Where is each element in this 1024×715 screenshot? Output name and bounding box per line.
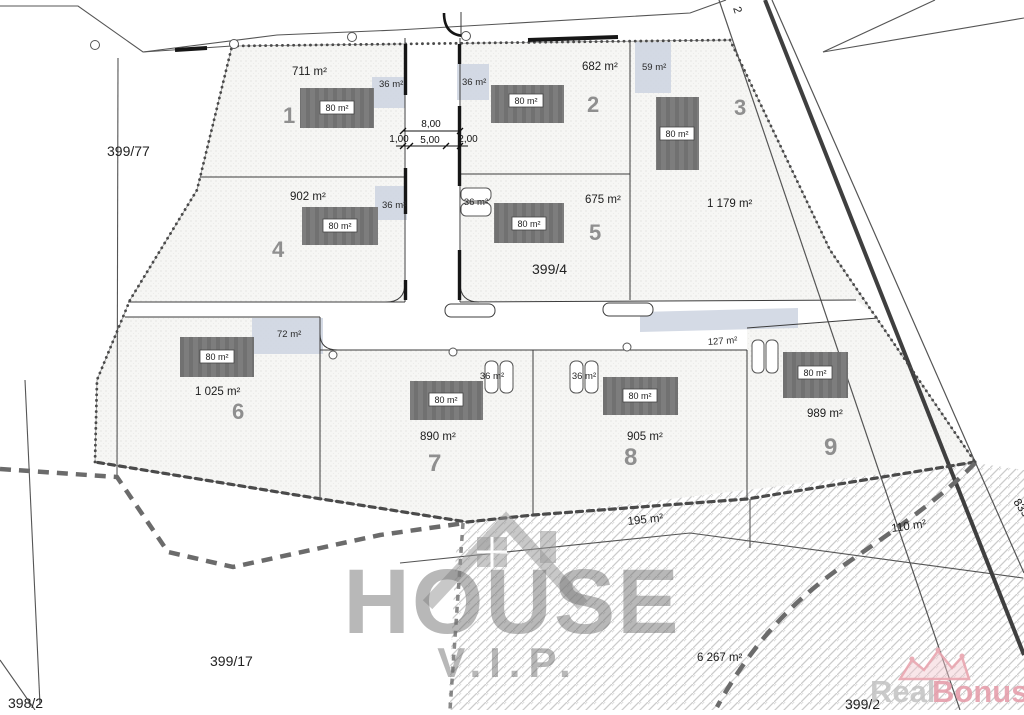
- plot-1-area: 711 m²: [292, 66, 327, 78]
- plot-6-number: 6: [232, 399, 244, 424]
- dim-right-label: 2,00: [458, 134, 478, 145]
- logo-word1: Real: [870, 674, 935, 709]
- plot-8-garage-label: 36 m²: [572, 371, 596, 382]
- parcel-398-2-label: 398/2: [8, 695, 43, 710]
- plot-3-number: 3: [734, 95, 746, 120]
- plot-5-house-label: 80 m²: [517, 219, 540, 229]
- parcel-399-17-label: 399/17: [210, 653, 253, 669]
- plot-4-garage-label: 36 m²: [382, 200, 406, 211]
- plot-9-number: 9: [824, 434, 837, 461]
- plot-8-number: 8: [624, 444, 637, 471]
- plot-4-number: 4: [272, 237, 285, 262]
- plot-1-garage-label: 36 m²: [379, 79, 403, 90]
- plot-5-number: 5: [589, 220, 601, 245]
- site-plan: 80 m² 80 m² 80 m² 80 m² 80 m² 80 m² 80 m…: [0, 0, 1024, 710]
- parcel-399-4-label: 399/4: [532, 261, 567, 277]
- plot-6-area: 1 025 m²: [195, 386, 241, 398]
- plot-5-area: 675 m²: [585, 194, 621, 206]
- plot-4-area: 902 m²: [290, 191, 326, 203]
- plot-9-garage-strip: [640, 308, 798, 332]
- plot-3-area: 1 179 m²: [707, 198, 753, 210]
- plot-1-number: 1: [283, 103, 295, 128]
- plot-9-parking: [752, 340, 764, 373]
- plot-2-house-label: 80 m²: [514, 96, 537, 106]
- logo-word2: Bonus: [932, 674, 1024, 709]
- plot-5-garage-label: 36 m²: [464, 197, 488, 208]
- plot-6-house: 80 m²: [180, 337, 254, 377]
- plot-3-house: 80 m²: [656, 97, 699, 170]
- watermark-line2: V.I.P.: [437, 639, 578, 686]
- plot-9-house: 80 m²: [783, 352, 848, 398]
- plot-7-house-label: 80 m²: [434, 395, 457, 405]
- plot-9-area: 989 m²: [807, 408, 843, 420]
- plot-4-house: 80 m²: [302, 207, 378, 245]
- plot-9-garage-label: 127 m²: [707, 335, 737, 348]
- plot-2-garage-label: 36 m²: [462, 77, 486, 88]
- parcel-399-77-label: 399/77: [107, 143, 150, 159]
- dim-left-label: 1,00: [389, 134, 409, 145]
- plot-6-house-label: 80 m²: [205, 352, 228, 362]
- plot-7-garage-label: 36 m²: [480, 371, 504, 382]
- plot-7-area: 890 m²: [420, 431, 456, 443]
- dim-total-label: 8,00: [421, 119, 441, 130]
- top-road-label: 2: [730, 5, 743, 15]
- plot-2-house: 80 m²: [491, 85, 564, 123]
- plot-9-house-label: 80 m²: [803, 368, 826, 378]
- dim-mid-label: 5,00: [420, 135, 440, 146]
- plot-3-garage-label: 59 m²: [642, 62, 666, 73]
- plot-5-house: 80 m²: [494, 203, 564, 243]
- plot-7-number: 7: [428, 450, 441, 477]
- plot-2-number: 2: [587, 92, 599, 117]
- plot-1-house: 80 m²: [300, 88, 374, 128]
- plot-8-house-label: 80 m²: [628, 391, 651, 401]
- plot-1-house-label: 80 m²: [325, 103, 348, 113]
- plot-8-house: 80 m²: [603, 377, 678, 415]
- plot-4-house-label: 80 m²: [328, 221, 351, 231]
- parcel-6267-label: 6 267 m²: [697, 652, 743, 664]
- watermark-line1: HOUSE: [343, 551, 680, 653]
- plot-2-area: 682 m²: [582, 61, 618, 73]
- plot-6-garage-label: 72 m²: [277, 329, 301, 340]
- plot-8-area: 905 m²: [627, 431, 663, 443]
- plot-3-house-label: 80 m²: [665, 129, 688, 139]
- plot-7-house: 80 m²: [410, 381, 483, 420]
